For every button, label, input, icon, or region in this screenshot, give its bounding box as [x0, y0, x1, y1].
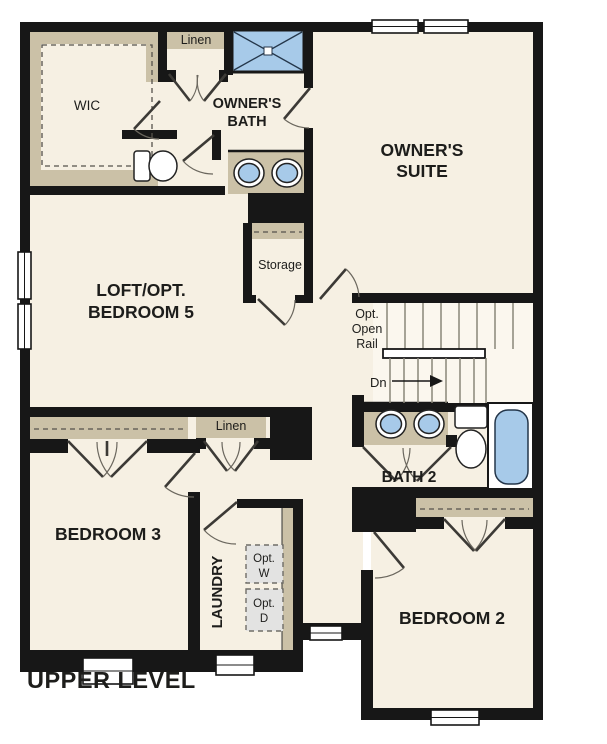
- room-label-bedroom2: BEDROOM 2: [399, 608, 505, 628]
- window: [18, 304, 31, 349]
- window: [372, 20, 418, 33]
- room-label-linen1: Linen: [181, 33, 212, 47]
- wic-trim-left: [29, 32, 41, 172]
- label-opt-d-1: Opt.: [253, 598, 275, 610]
- storage-shelf: [252, 223, 304, 239]
- room-label-linen2: Linen: [216, 419, 247, 433]
- room-label-bedroom3: BEDROOM 3: [55, 524, 161, 544]
- floor-plan-page: WIC Linen OWNER'S BATH OWNER'S SUITE LOF…: [0, 0, 607, 744]
- room-label-owners-bath-1: OWNER'S: [213, 96, 282, 112]
- label-opt-rail-1: Opt.: [355, 307, 379, 321]
- page-title: UPPER LEVEL: [27, 667, 196, 693]
- floor-plan: WIC Linen OWNER'S BATH OWNER'S SUITE LOF…: [0, 0, 607, 744]
- label-opt-rail-3: Rail: [356, 337, 378, 351]
- label-opt-w-2: W: [259, 568, 270, 580]
- bathtub: [488, 403, 533, 489]
- window: [18, 252, 31, 299]
- room-label-owners-suite-2: SUITE: [396, 161, 448, 181]
- wic-trim-top: [29, 32, 158, 44]
- owners-toilet: [134, 151, 177, 181]
- room-label-wic: WIC: [74, 98, 100, 113]
- room-label-owners-bath-2: BATH: [227, 114, 266, 130]
- label-opt-d-2: D: [260, 613, 268, 625]
- label-opt-rail-2: Open: [352, 322, 383, 336]
- shower: [232, 30, 304, 72]
- window: [310, 626, 342, 640]
- stair-railing: [383, 349, 485, 358]
- room-label-loft-2: BEDROOM 5: [88, 302, 194, 322]
- bedroom3-closet-shelf: [30, 417, 188, 439]
- window: [216, 655, 254, 675]
- room-label-laundry: LAUNDRY: [209, 556, 226, 629]
- label-opt-w-1: Opt.: [253, 553, 275, 565]
- window: [424, 20, 468, 33]
- label-dn: Dn: [370, 375, 387, 390]
- window: [431, 710, 479, 725]
- room-label-owners-suite-1: OWNER'S: [381, 140, 464, 160]
- bedroom2-closet-shelf: [416, 498, 533, 517]
- room-label-loft-1: LOFT/OPT.: [96, 280, 185, 300]
- room-label-storage: Storage: [258, 258, 302, 272]
- room-label-bath2: BATH 2: [382, 469, 437, 486]
- bath2-toilet: [455, 406, 487, 468]
